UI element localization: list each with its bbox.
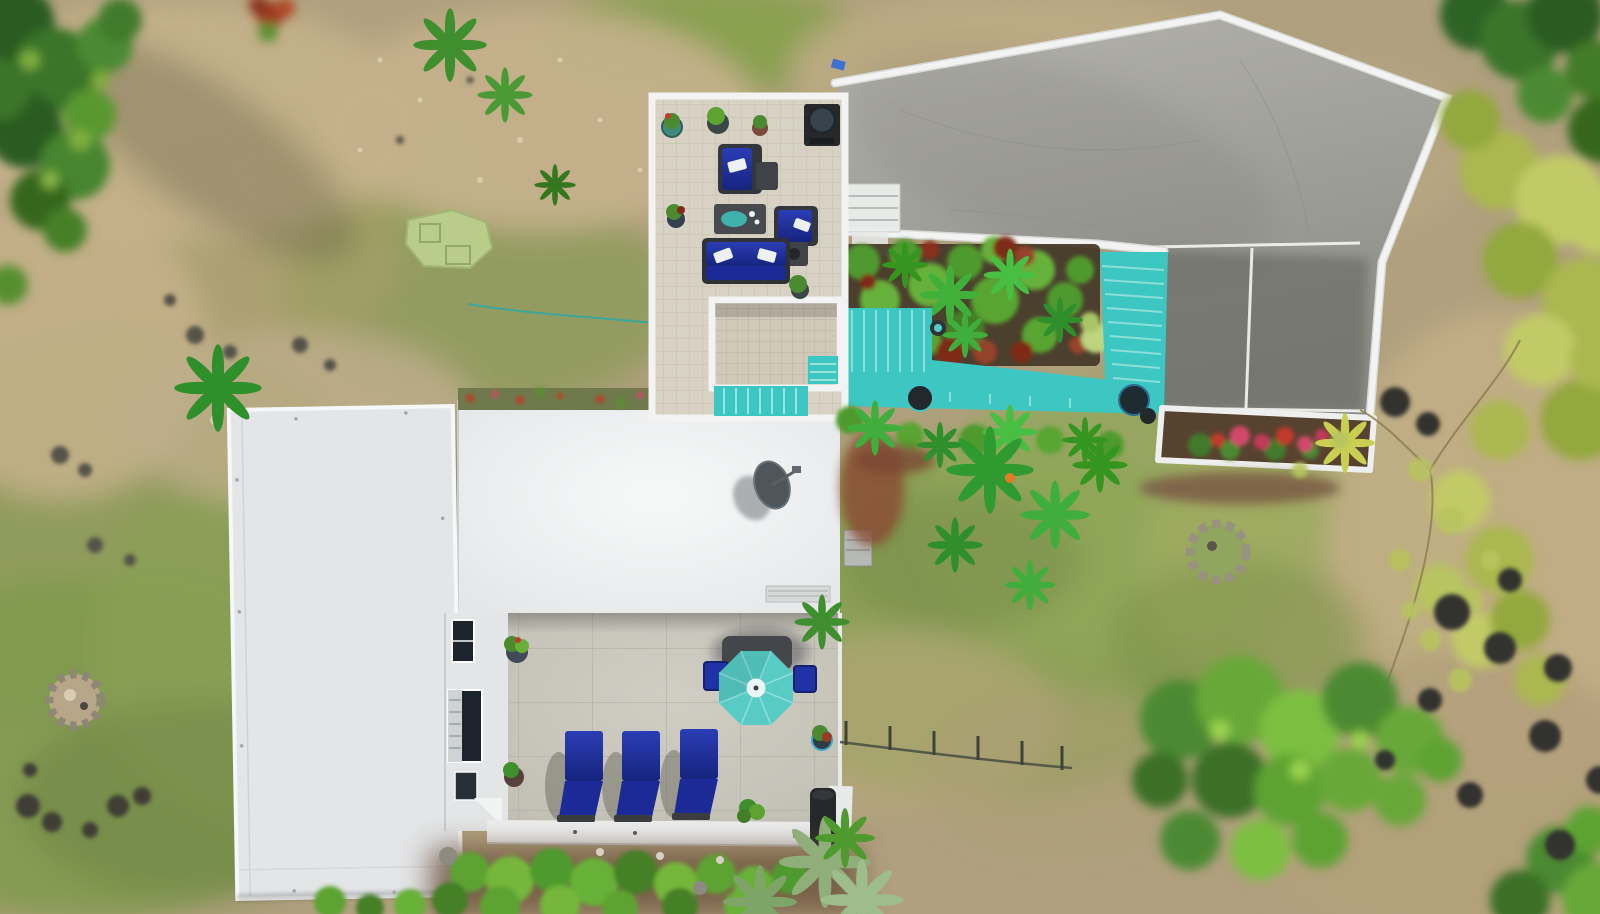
window-small xyxy=(455,772,477,800)
fence-post xyxy=(1021,741,1024,765)
scene-canvas xyxy=(0,0,1600,914)
terrace-stairs-small xyxy=(808,356,838,384)
putting-green-mat xyxy=(406,210,492,268)
lounge-chairs xyxy=(545,729,718,822)
left-main-roof xyxy=(229,406,462,901)
terrace-coffee-table xyxy=(714,204,766,234)
ottoman xyxy=(756,162,778,190)
fence-post xyxy=(889,726,892,750)
rock-fire-ring-left xyxy=(49,674,101,726)
dining-chair-right xyxy=(794,666,816,692)
flower-strip xyxy=(458,388,658,410)
fence-post xyxy=(845,721,848,745)
window-upper xyxy=(452,620,474,662)
aerial-photo-scene xyxy=(0,0,1600,914)
window-shuttered xyxy=(448,690,482,762)
grill xyxy=(804,104,840,146)
terrace-stairs-main xyxy=(714,386,808,416)
mulch-strip xyxy=(1140,472,1340,504)
patio-umbrella xyxy=(719,651,793,725)
fence-post xyxy=(977,736,980,760)
left-palm-tree xyxy=(174,344,261,431)
driveway-shadowed-section xyxy=(1148,250,1368,412)
terrace-sofa xyxy=(702,238,790,284)
fence-post xyxy=(1061,746,1064,770)
orange-flower xyxy=(1005,473,1015,483)
roof-terrace xyxy=(652,96,845,418)
east-wall xyxy=(442,613,508,831)
fence-post xyxy=(933,731,936,755)
rock-ring-right xyxy=(1190,524,1246,580)
